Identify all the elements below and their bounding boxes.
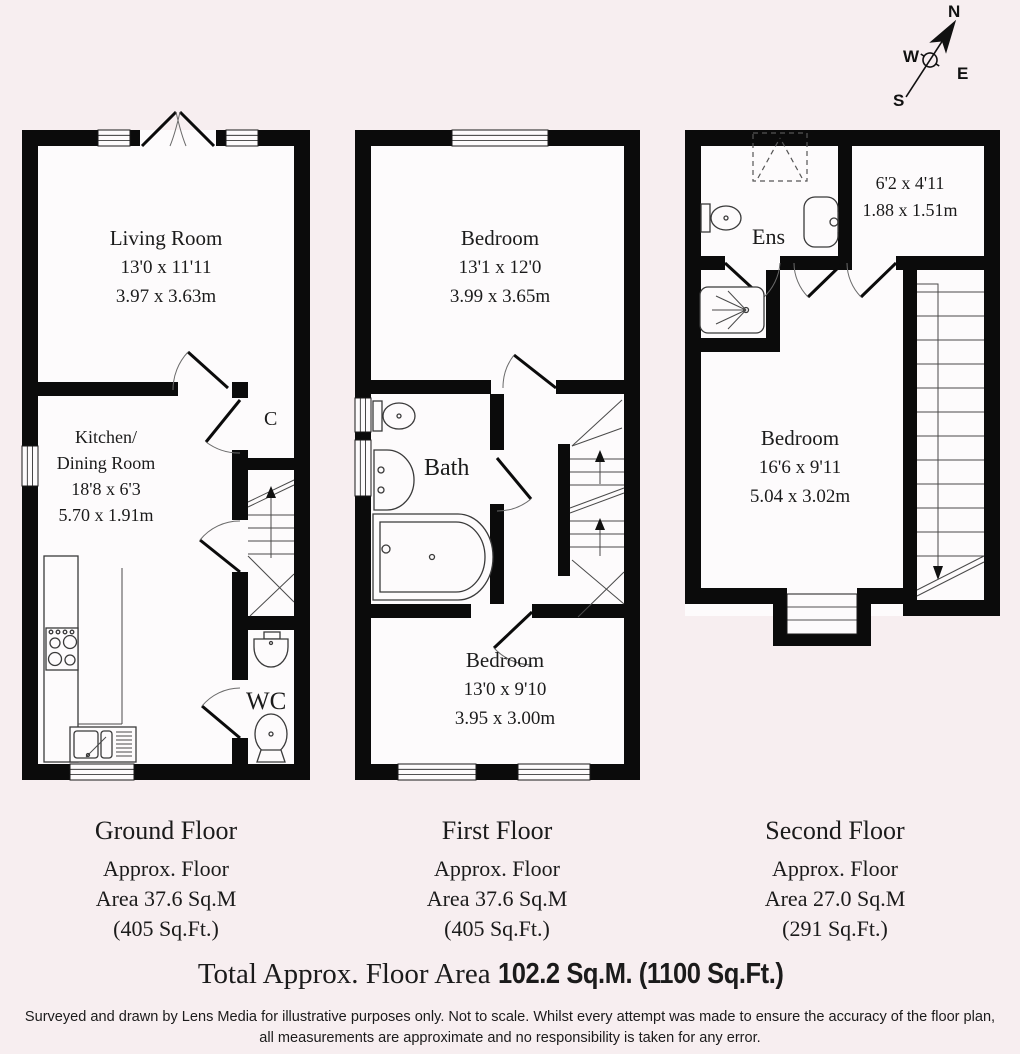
ensuite-label: Ens <box>752 224 785 250</box>
bedroom-back-imperial: 13'0 x 9'10 <box>385 675 625 704</box>
bedroom-second-imperial: 16'6 x 9'11 <box>680 453 920 482</box>
second-floor-title: Second Floor <box>695 814 975 848</box>
cupboard-label: C <box>264 408 277 431</box>
store-room-metric: 1.88 x 1.51m <box>830 197 990 224</box>
toilet-icon <box>701 204 741 232</box>
toilet-icon <box>373 401 415 431</box>
living-room-label: Living Room 13'0 x 11'11 3.97 x 3.63m <box>46 224 286 311</box>
compass-south-label: S <box>893 91 904 111</box>
ground-floor-caption: Ground Floor Approx. Floor Area 37.6 Sq.… <box>26 814 306 944</box>
total-area-line: Total Approx. Floor Area 102.2 Sq.M. (11… <box>0 958 1020 991</box>
living-room-name: Living Room <box>46 224 286 253</box>
window-icon <box>787 594 857 634</box>
ground-floor-area-3: (405 Sq.Ft.) <box>26 914 306 944</box>
shower-icon <box>700 287 764 333</box>
wc-label: WC <box>246 688 286 716</box>
compass-north-label: N <box>948 2 960 22</box>
disclaimer-line-1: Surveyed and drawn by Lens Media for ill… <box>15 1006 1004 1027</box>
total-area-prefix: Total Approx. Floor Area <box>198 958 498 990</box>
first-floor-area-2: Area 37.6 Sq.M <box>357 884 637 914</box>
kitchen-label: Kitchen/ Dining Room 18'8 x 6'3 5.70 x 1… <box>36 424 176 528</box>
ground-floor-area-2: Area 37.6 Sq.M <box>26 884 306 914</box>
kitchen-name-1: Kitchen/ <box>36 424 176 450</box>
second-floor-area-1: Approx. Floor <box>695 854 975 884</box>
living-room-metric: 3.97 x 3.63m <box>46 282 286 311</box>
kitchen-imperial: 18'8 x 6'3 <box>36 476 176 502</box>
bedroom-front-imperial: 13'1 x 12'0 <box>380 253 620 282</box>
second-floor-area-3: (291 Sq.Ft.) <box>695 914 975 944</box>
first-floor-caption: First Floor Approx. Floor Area 37.6 Sq.M… <box>357 814 637 944</box>
kitchen-metric: 5.70 x 1.91m <box>36 502 176 528</box>
bedroom-second-metric: 5.04 x 3.02m <box>680 482 920 511</box>
disclaimer: Surveyed and drawn by Lens Media for ill… <box>15 1006 1004 1048</box>
bedroom-second-label: Bedroom 16'6 x 9'11 5.04 x 3.02m <box>680 424 920 511</box>
bedroom-front-name: Bedroom <box>380 224 620 253</box>
bedroom-back-name: Bedroom <box>385 646 625 675</box>
first-floor-title: First Floor <box>357 814 637 848</box>
compass-west-label: W <box>903 47 919 67</box>
bedroom-back-metric: 3.95 x 3.00m <box>385 704 625 733</box>
disclaimer-line-2: all measurements are approximate and no … <box>15 1027 1004 1048</box>
first-floor-area-1: Approx. Floor <box>357 854 637 884</box>
hob-icon <box>46 628 78 670</box>
bedroom-back-label: Bedroom 13'0 x 9'10 3.95 x 3.00m <box>385 646 625 733</box>
bath-label: Bath <box>424 455 469 482</box>
bedroom-front-label: Bedroom 13'1 x 12'0 3.99 x 3.65m <box>380 224 620 311</box>
toilet-icon <box>255 714 287 762</box>
first-floor-area-3: (405 Sq.Ft.) <box>357 914 637 944</box>
store-room-label: 6'2 x 4'11 1.88 x 1.51m <box>830 170 990 224</box>
floorplan-page: N W E S Living Room 13'0 x 11'11 3.97 x … <box>0 0 1020 1054</box>
compass-east-label: E <box>957 64 968 84</box>
total-area-value: 102.2 Sq.M. (1100 Sq.Ft.) <box>498 958 783 991</box>
bathtub-icon <box>373 514 493 600</box>
bedroom-front-metric: 3.99 x 3.65m <box>380 282 620 311</box>
living-room-imperial: 13'0 x 11'11 <box>46 253 286 282</box>
ground-floor-area-1: Approx. Floor <box>26 854 306 884</box>
kitchen-sink-icon <box>70 727 136 762</box>
bedroom-second-name: Bedroom <box>680 424 920 453</box>
second-floor-caption: Second Floor Approx. Floor Area 27.0 Sq.… <box>695 814 975 944</box>
second-floor-area-2: Area 27.0 Sq.M <box>695 884 975 914</box>
store-room-imperial: 6'2 x 4'11 <box>830 170 990 197</box>
kitchen-name-2: Dining Room <box>36 450 176 476</box>
ground-floor-title: Ground Floor <box>26 814 306 848</box>
